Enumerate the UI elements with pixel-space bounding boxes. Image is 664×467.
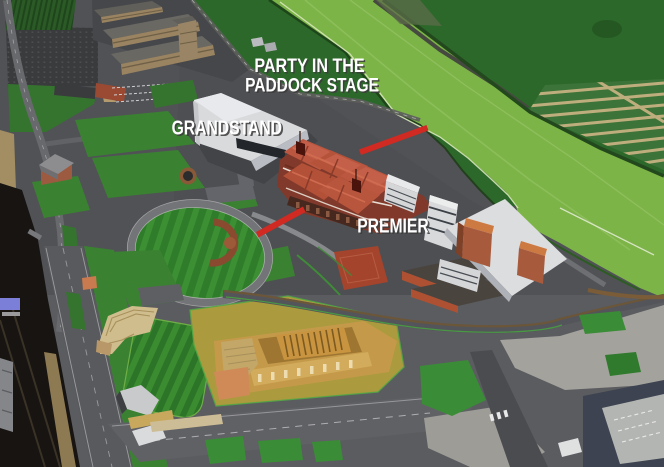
svg-text:GRANDSTAND: GRANDSTAND: [172, 116, 282, 138]
svg-text:PADDOCK STAGE: PADDOCK STAGE: [245, 74, 379, 96]
svg-text:PREMIER: PREMIER: [357, 214, 429, 236]
